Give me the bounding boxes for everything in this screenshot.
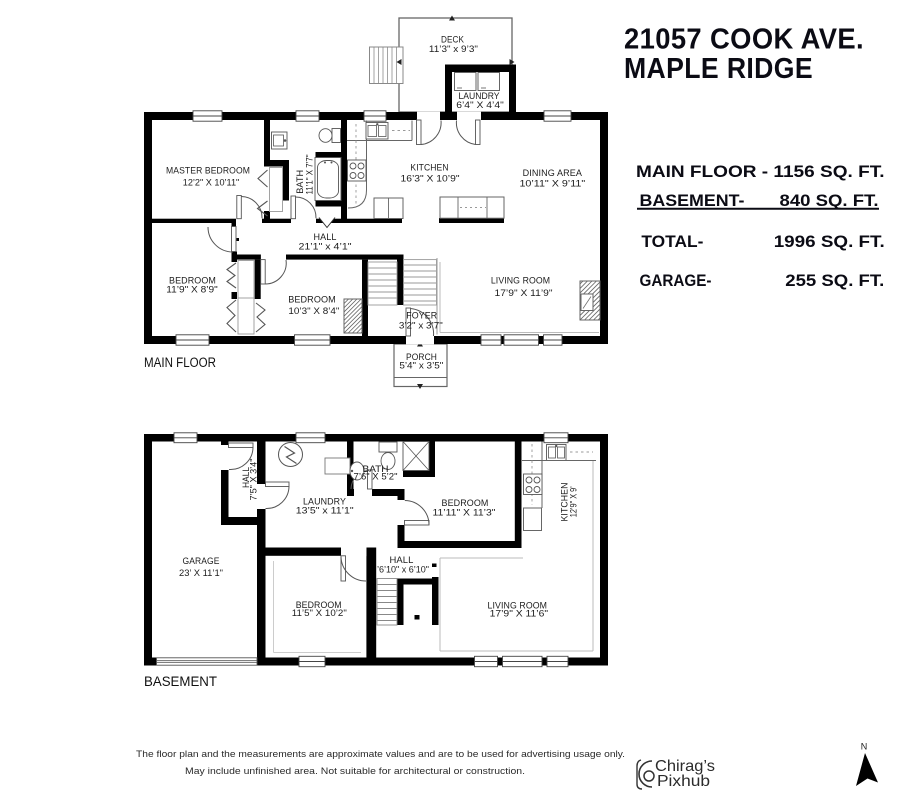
svg-text:21’1" x 4’1": 21’1" x 4’1" — [299, 241, 352, 251]
svg-text:255 SQ. FT.: 255 SQ. FT. — [785, 272, 884, 290]
svg-text:May include unfinished area. N: May include unfinished area. Not suitabl… — [185, 766, 525, 776]
svg-text:’6’10" x 6’10": ’6’10" x 6’10" — [377, 564, 429, 574]
svg-text:Pixhub: Pixhub — [657, 773, 710, 790]
svg-text:MASTER BEDROOM: MASTER BEDROOM — [166, 165, 250, 175]
svg-text:11’5" X 10’2": 11’5" X 10’2" — [292, 608, 347, 618]
svg-text:BEDROOM: BEDROOM — [288, 295, 336, 305]
svg-text:16’3" X 10’9": 16’3" X 10’9" — [401, 173, 460, 183]
svg-text:KITCHEN: KITCHEN — [410, 163, 448, 173]
svg-text:GARAGE: GARAGE — [183, 556, 220, 566]
svg-text:10’3" X 8’4": 10’3" X 8’4" — [288, 306, 339, 316]
svg-text:11’11" X 11’3": 11’11" X 11’3" — [433, 508, 496, 518]
svg-text:GARAGE-: GARAGE- — [640, 272, 712, 290]
svg-text:The floor plan and the measure: The floor plan and the measurements are … — [136, 749, 625, 759]
svg-text:TOTAL-: TOTAL- — [641, 233, 703, 251]
svg-text:21057 COOK AVE.: 21057 COOK AVE. — [624, 24, 864, 56]
svg-text:6’4" X 4’4": 6’4" X 4’4" — [456, 100, 504, 110]
svg-text:MAIN FLOOR: MAIN FLOOR — [144, 355, 216, 370]
svg-text:BEDROOM: BEDROOM — [442, 498, 489, 508]
svg-text:23’ X 11’1": 23’ X 11’1" — [179, 568, 223, 578]
svg-text:7’6" X 5’2": 7’6" X 5’2" — [354, 472, 398, 482]
svg-text:DINING AREA: DINING AREA — [523, 168, 583, 178]
svg-text:10’11" X 9’11": 10’11" X 9’11" — [519, 178, 585, 188]
svg-text:11’1" X 7’7": 11’1" X 7’7" — [305, 155, 315, 195]
svg-text:7’5" X 3’4": 7’5" X 3’4" — [249, 459, 259, 501]
svg-text:DECK: DECK — [441, 34, 465, 44]
svg-text:5’4" x 3’5": 5’4" x 3’5" — [399, 361, 443, 371]
svg-text:13’5" x 11’1": 13’5" x 11’1" — [296, 506, 354, 516]
svg-text:17’9" X 11’6": 17’9" X 11’6" — [490, 608, 548, 618]
svg-text:11’3" x 9’3": 11’3" x 9’3" — [429, 44, 478, 54]
svg-text:11’9" X 8’9": 11’9" X 8’9" — [166, 284, 218, 294]
svg-text:840 SQ. FT.: 840 SQ. FT. — [780, 192, 879, 210]
svg-text:BASEMENT: BASEMENT — [144, 674, 217, 689]
svg-text:3’2" x 3’7": 3’2" x 3’7" — [399, 320, 443, 330]
svg-text:12’9" X 9’: 12’9" X 9’ — [569, 486, 579, 517]
svg-text:17’9" X 11’9": 17’9" X 11’9" — [495, 288, 553, 298]
svg-text:LIVING ROOM: LIVING ROOM — [491, 275, 550, 285]
svg-text:N: N — [861, 742, 868, 752]
svg-text:BASEMENT-: BASEMENT- — [640, 192, 745, 210]
svg-text:MAIN FLOOR - 1156 SQ. FT.: MAIN FLOOR - 1156 SQ. FT. — [636, 163, 885, 181]
svg-text:1996 SQ. FT.: 1996 SQ. FT. — [774, 233, 885, 251]
svg-text:MAPLE RIDGE: MAPLE RIDGE — [624, 53, 813, 85]
svg-text:FOYER: FOYER — [406, 310, 437, 320]
svg-text:BATH: BATH — [295, 170, 305, 194]
svg-text:12’2" X 10’11": 12’2" X 10’11" — [183, 178, 240, 188]
